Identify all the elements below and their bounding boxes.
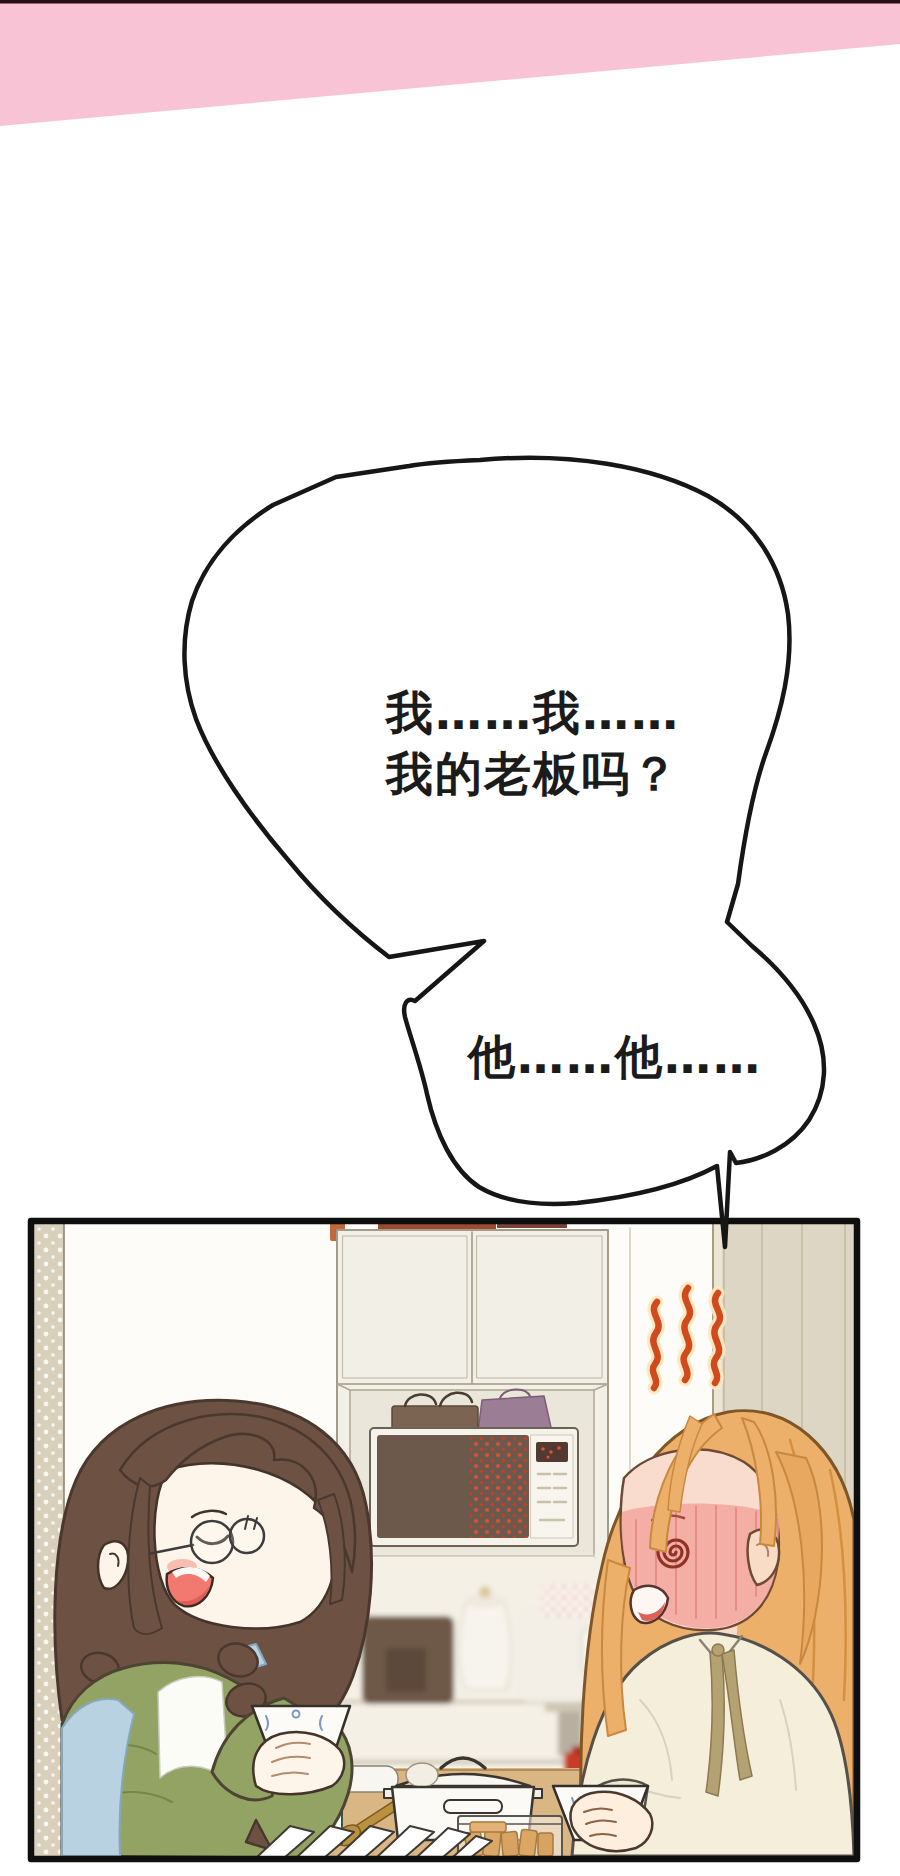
coffee-maker <box>518 1608 588 1702</box>
speech-bubble-1-text: 我……我…… 我的老板吗？ <box>386 682 680 804</box>
top-accent-line <box>0 0 900 4</box>
kitchen-cabinet <box>330 1222 630 1585</box>
microwave <box>370 1428 578 1546</box>
top-banner <box>0 0 900 126</box>
left-girl <box>55 1400 372 1858</box>
speech-bubble-2-text: 他……他…… <box>468 1026 762 1087</box>
bubble-2-line-1: 他……他…… <box>468 1026 762 1087</box>
purple-bag <box>478 1396 552 1432</box>
left-girl-hand <box>253 1732 344 1794</box>
bubble-1-line-2: 我的老板吗？ <box>386 743 680 804</box>
comic-page: 我……我…… 我的老板吗？ 他……他…… <box>0 0 900 1876</box>
speech-bubble-outline <box>184 458 824 1247</box>
comic-panel <box>31 1221 857 1862</box>
comic-art <box>0 0 900 1876</box>
bubble-1-line-1: 我……我…… <box>386 682 680 743</box>
egg <box>406 1763 438 1787</box>
pink-diagonal-band <box>0 0 900 126</box>
kettle <box>459 1602 512 1690</box>
